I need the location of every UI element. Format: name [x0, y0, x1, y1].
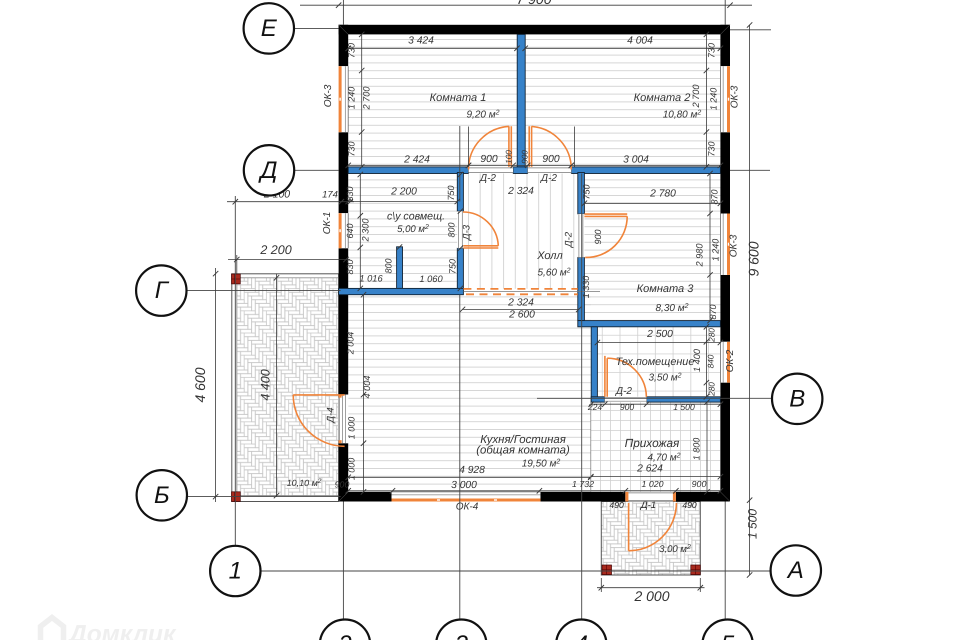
svg-text:870: 870 — [710, 189, 720, 204]
svg-text:730: 730 — [347, 141, 357, 156]
svg-text:3 004: 3 004 — [623, 154, 649, 165]
svg-text:1 060: 1 060 — [419, 274, 443, 284]
svg-text:c\у совмещ.: c\у совмещ. — [387, 211, 445, 223]
svg-text:490: 490 — [682, 500, 697, 510]
svg-text:2 324: 2 324 — [507, 298, 534, 309]
svg-text:Д: Д — [258, 157, 278, 184]
svg-text:830: 830 — [345, 186, 355, 201]
svg-text:900: 900 — [692, 479, 707, 489]
svg-text:10,80 м2: 10,80 м2 — [663, 110, 702, 121]
svg-text:4 004: 4 004 — [627, 36, 653, 47]
svg-text:1: 1 — [229, 558, 242, 585]
svg-text:Прихожая: Прихожая — [625, 436, 680, 450]
svg-text:ОК-1: ОК-1 — [322, 212, 333, 235]
svg-text:100: 100 — [504, 150, 514, 164]
svg-text:830: 830 — [345, 259, 355, 274]
svg-text:В: В — [789, 385, 805, 412]
svg-text:Д-4: Д-4 — [326, 407, 337, 423]
svg-text:750: 750 — [448, 259, 458, 274]
svg-text:4,70 м2: 4,70 м2 — [647, 453, 680, 464]
svg-text:8,30 м2: 8,30 м2 — [655, 303, 688, 314]
svg-text:1 330: 1 330 — [581, 276, 591, 299]
svg-text:2 300: 2 300 — [361, 218, 371, 243]
svg-text:2 700: 2 700 — [691, 84, 701, 109]
svg-text:1 000: 1 000 — [347, 417, 357, 440]
svg-text:Домклик: Домклик — [67, 621, 177, 640]
svg-text:900: 900 — [593, 229, 603, 244]
svg-text:1 500: 1 500 — [673, 402, 695, 412]
svg-text:730: 730 — [707, 141, 717, 156]
svg-text:900: 900 — [335, 480, 350, 490]
svg-text:224: 224 — [587, 402, 603, 412]
svg-text:Д-2: Д-2 — [615, 386, 632, 397]
svg-text:4: 4 — [575, 631, 588, 640]
svg-text:19,50 м2: 19,50 м2 — [522, 459, 561, 470]
svg-text:3,50 м2: 3,50 м2 — [648, 373, 681, 384]
svg-text:ОК-3: ОК-3 — [323, 84, 334, 107]
svg-text:4 600: 4 600 — [192, 367, 208, 402]
svg-text:ОК-3: ОК-3 — [729, 234, 740, 257]
svg-text:730: 730 — [347, 43, 357, 58]
svg-text:3,00 м2: 3,00 м2 — [659, 544, 691, 555]
svg-text:1 240: 1 240 — [709, 88, 719, 111]
svg-text:2 004: 2 004 — [346, 332, 356, 356]
svg-text:490: 490 — [609, 500, 624, 510]
svg-text:2 780: 2 780 — [649, 189, 676, 200]
svg-text:1 016: 1 016 — [359, 274, 383, 284]
svg-text:Г: Г — [155, 277, 170, 304]
svg-text:9 600: 9 600 — [746, 241, 762, 276]
svg-text:900: 900 — [520, 150, 530, 164]
svg-text:4 928: 4 928 — [459, 465, 485, 476]
svg-text:3 000: 3 000 — [451, 480, 477, 491]
svg-text:Комната 1: Комната 1 — [430, 92, 487, 104]
svg-text:Д-2: Д-2 — [564, 231, 575, 248]
svg-text:3 424: 3 424 — [408, 36, 434, 47]
svg-text:2 700: 2 700 — [362, 86, 372, 111]
svg-text:2 980: 2 980 — [695, 243, 705, 268]
svg-text:2 324: 2 324 — [507, 186, 534, 197]
svg-text:174: 174 — [322, 190, 338, 201]
svg-text:Д-3: Д-3 — [462, 224, 473, 241]
svg-text:280: 280 — [707, 382, 717, 397]
svg-text:840: 840 — [706, 354, 716, 368]
svg-text:900: 900 — [542, 154, 559, 165]
svg-text:Комната 3: Комната 3 — [637, 283, 695, 295]
svg-text:Д-2: Д-2 — [479, 173, 496, 184]
svg-text:2 624: 2 624 — [636, 464, 663, 475]
svg-text:280: 280 — [707, 328, 717, 343]
svg-text:ОК-3: ОК-3 — [730, 85, 741, 108]
svg-text:1 240: 1 240 — [347, 87, 357, 110]
svg-text:2: 2 — [337, 631, 351, 640]
svg-text:800: 800 — [447, 222, 457, 237]
svg-text:4 400: 4 400 — [259, 369, 273, 400]
svg-text:2 000: 2 000 — [633, 588, 669, 604]
svg-text:3: 3 — [455, 631, 469, 640]
svg-text:2 500: 2 500 — [646, 329, 673, 340]
svg-text:1 500: 1 500 — [746, 509, 760, 539]
svg-text:5: 5 — [721, 631, 735, 640]
svg-text:Д-1: Д-1 — [640, 500, 656, 511]
svg-text:Тех.помещение: Тех.помещение — [616, 356, 695, 368]
svg-text:5,60 м2: 5,60 м2 — [537, 268, 570, 279]
svg-text:Е: Е — [261, 15, 278, 42]
svg-text:1 800: 1 800 — [692, 438, 702, 461]
svg-text:А: А — [786, 557, 804, 584]
svg-text:ОК-2: ОК-2 — [725, 349, 736, 372]
svg-text:4 004: 4 004 — [362, 376, 372, 399]
svg-text:10,10 м2: 10,10 м2 — [287, 478, 322, 488]
svg-text:2 200: 2 200 — [259, 243, 291, 257]
svg-text:730: 730 — [707, 43, 717, 58]
svg-text:7 900: 7 900 — [516, 0, 551, 7]
svg-text:2 600: 2 600 — [508, 310, 535, 321]
svg-text:(общая комната): (общая комната) — [476, 445, 570, 457]
svg-text:2 200: 2 200 — [390, 187, 417, 198]
svg-text:870: 870 — [708, 304, 718, 319]
svg-text:750: 750 — [446, 185, 456, 200]
svg-text:800: 800 — [384, 258, 394, 273]
svg-text:Холл: Холл — [536, 250, 562, 262]
svg-text:Б: Б — [154, 482, 170, 509]
svg-text:900: 900 — [620, 402, 635, 412]
svg-text:750: 750 — [582, 184, 592, 199]
svg-text:Д-2: Д-2 — [540, 173, 557, 184]
svg-text:ОК-4: ОК-4 — [456, 502, 479, 513]
svg-text:1 240: 1 240 — [711, 239, 721, 262]
svg-text:640: 640 — [345, 223, 355, 238]
svg-text:2 424: 2 424 — [403, 154, 430, 165]
svg-text:Комната 2: Комната 2 — [634, 92, 691, 104]
svg-text:900: 900 — [480, 154, 497, 165]
svg-text:9,20 м2: 9,20 м2 — [466, 110, 499, 121]
svg-text:5,00 м2: 5,00 м2 — [397, 224, 429, 235]
svg-text:1 020: 1 020 — [641, 479, 663, 489]
